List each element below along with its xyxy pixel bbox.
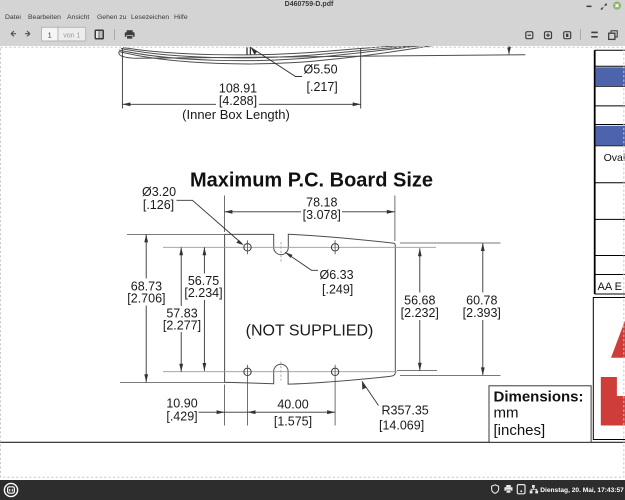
svg-text:[.126]: [.126] [143,198,174,212]
svg-text:Ø5.50: Ø5.50 [304,63,338,77]
svg-text:AA E: AA E [598,281,622,293]
svg-text:Ovale: Ovale [604,152,625,164]
svg-text:[.429]: [.429] [166,410,197,424]
svg-text:Ø6.33: Ø6.33 [320,268,354,282]
svg-text:(NOT SUPPLIED): (NOT SUPPLIED) [246,323,374,340]
svg-text:Dienstag, 20. Mai, 17:43:57: Dienstag, 20. Mai, 17:43:57 [540,487,624,494]
svg-text:(Inner Box Length): (Inner Box Length) [182,107,290,122]
svg-text:1: 1 [48,32,52,39]
svg-text:[inches]: [inches] [494,422,546,439]
svg-text:10.90: 10.90 [166,397,197,411]
svg-text:[4.288]: [4.288] [219,94,257,108]
svg-text:[.249]: [.249] [322,283,353,297]
svg-text:Maximum P.C. Board Size: Maximum P.C. Board Size [190,170,433,192]
svg-text:[2.706]: [2.706] [127,292,165,306]
svg-text:[2.393]: [2.393] [463,306,501,320]
svg-text:R357.35: R357.35 [382,404,429,418]
svg-text:[14.069]: [14.069] [379,419,424,433]
svg-text:mm: mm [494,405,519,422]
svg-text:Dimensions:: Dimensions: [494,389,584,406]
svg-text:40.00: 40.00 [277,398,308,412]
svg-text:von 1: von 1 [63,32,80,39]
svg-text:[.217]: [.217] [307,80,338,94]
svg-text:[2.277]: [2.277] [163,319,201,333]
svg-text:[1.575]: [1.575] [274,415,312,429]
svg-text:[2.232]: [2.232] [401,306,439,320]
svg-text:[3.078]: [3.078] [303,208,341,222]
svg-text:[2.234]: [2.234] [184,286,222,300]
